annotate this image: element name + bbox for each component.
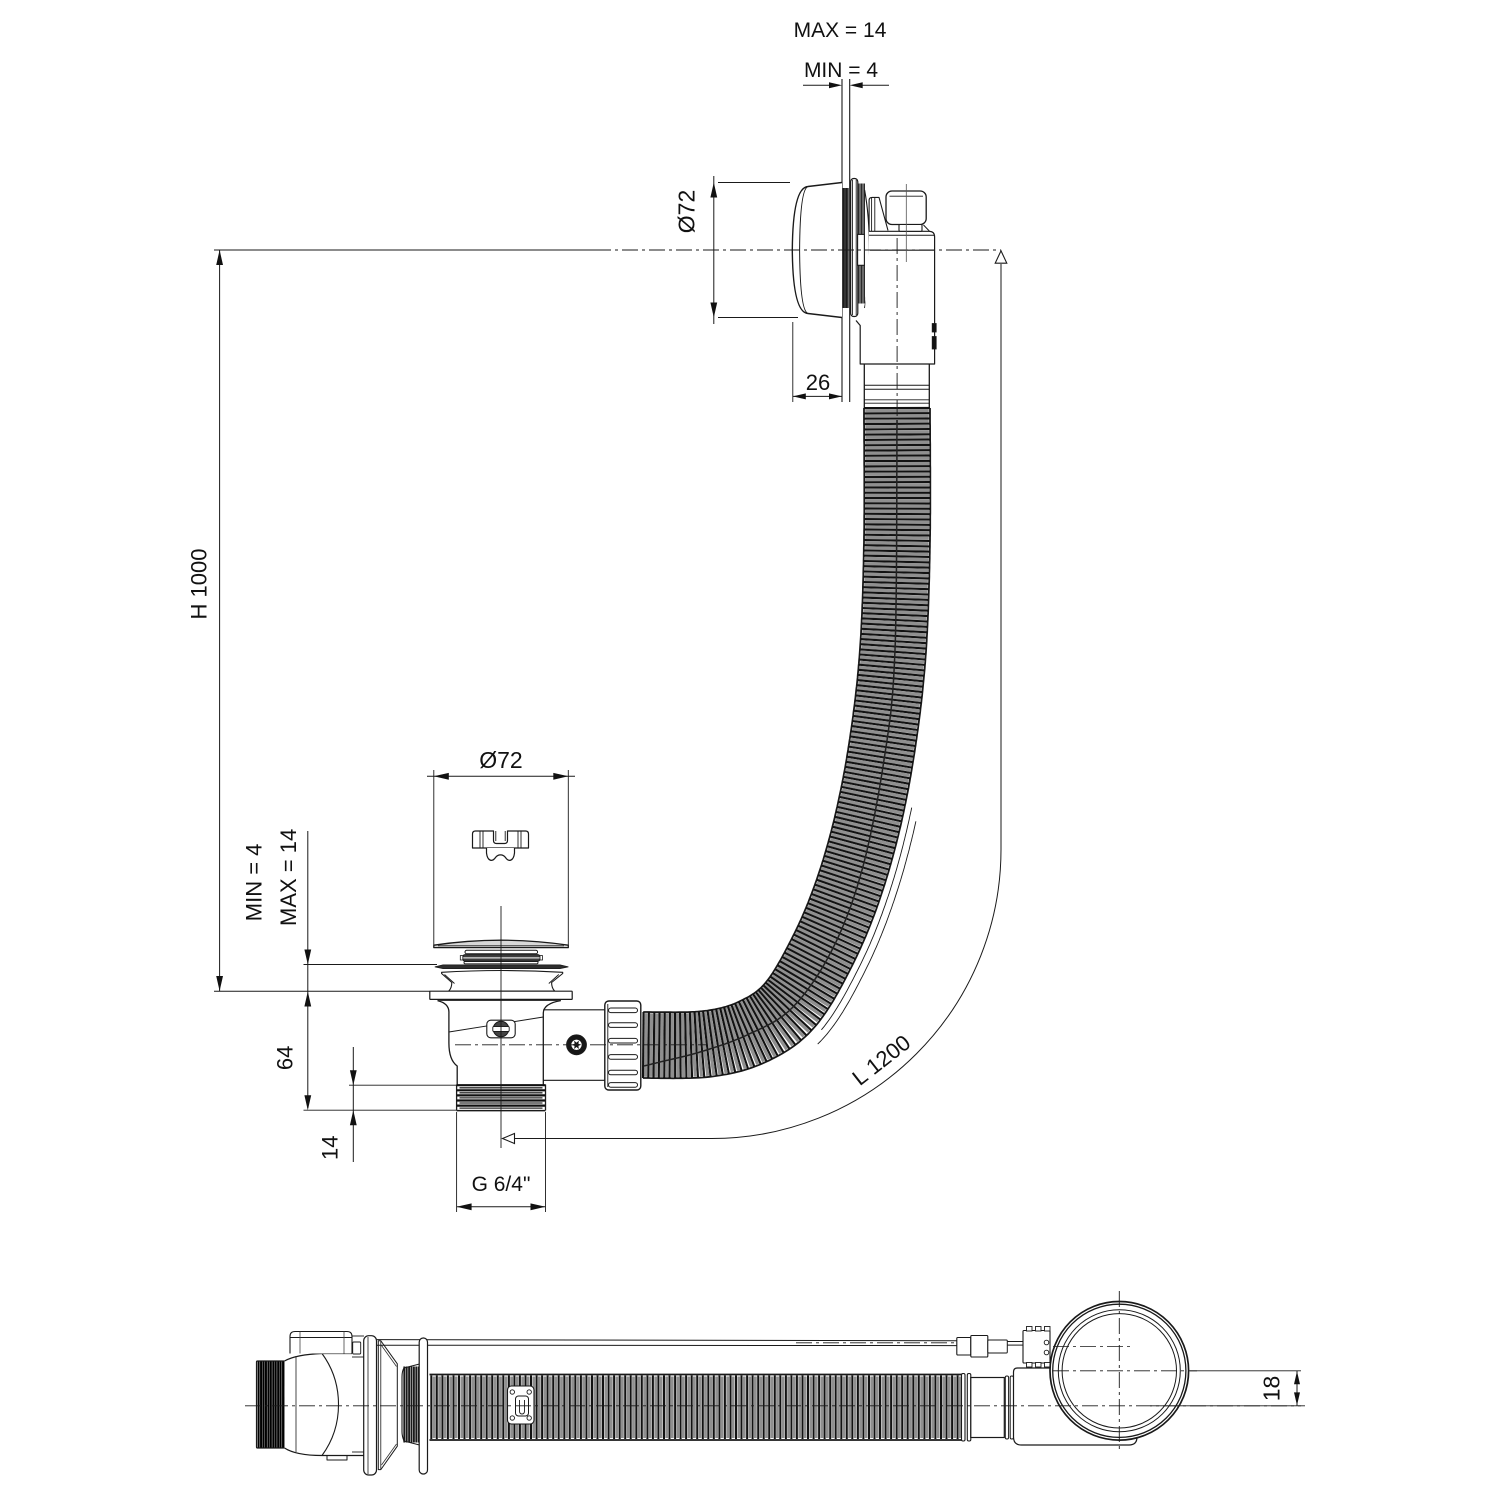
- svg-text:MAX = 14: MAX = 14: [794, 19, 887, 42]
- svg-text:MIN = 4: MIN = 4: [804, 59, 878, 82]
- svg-text:G 6/4": G 6/4": [472, 1173, 531, 1196]
- svg-text:64: 64: [273, 1046, 298, 1070]
- svg-text:MIN = 4: MIN = 4: [241, 844, 266, 922]
- svg-text:Ø72: Ø72: [674, 190, 700, 233]
- svg-text:MAX = 14: MAX = 14: [276, 829, 301, 926]
- svg-text:18: 18: [1259, 1376, 1285, 1402]
- svg-text:14: 14: [318, 1136, 343, 1160]
- svg-text:26: 26: [806, 370, 830, 395]
- svg-text:H 1000: H 1000: [187, 549, 212, 620]
- svg-text:Ø72: Ø72: [479, 747, 522, 773]
